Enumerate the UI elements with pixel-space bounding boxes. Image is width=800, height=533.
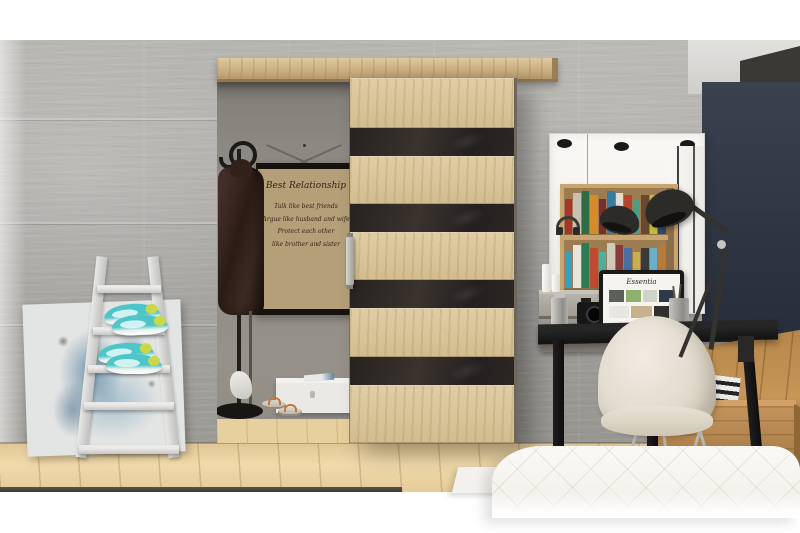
door-glass-stripe <box>350 128 514 156</box>
door-handle <box>346 236 354 286</box>
sandal <box>278 407 302 416</box>
sandals <box>262 400 306 418</box>
quote-poster: Best Relationship Talk like best friends… <box>256 163 356 315</box>
poster-line: like brother and sister <box>258 239 354 252</box>
door-wood-panel <box>350 78 514 128</box>
bed-duvet <box>492 446 800 518</box>
thumbnail-row <box>609 290 674 302</box>
door-wood-panel <box>350 232 514 281</box>
door-wood-panel <box>350 385 514 443</box>
headphones <box>556 216 580 235</box>
sneaker <box>106 354 162 374</box>
floor-edge-shadow <box>0 487 402 492</box>
ladder-step <box>79 445 179 454</box>
door-glass-stripe <box>350 204 514 232</box>
door-glass-stripe <box>350 357 514 384</box>
door-wood-panel <box>350 308 514 358</box>
spotlight-reflection <box>557 139 572 148</box>
poster-line: Talk like best friends <box>258 201 354 214</box>
silver-canister <box>551 297 568 326</box>
door-glass-stripe <box>350 280 514 307</box>
candle <box>552 274 560 292</box>
ladder-step <box>84 402 174 410</box>
chest-magazine <box>304 373 334 383</box>
candle <box>542 264 551 292</box>
poster-line: Argue like husband and wife <box>258 214 354 227</box>
wall-panel-seam <box>0 118 217 120</box>
lamp-joint <box>717 240 726 249</box>
interior-photo: Best Relationship Talk like best friends… <box>0 0 800 533</box>
coat <box>218 167 264 315</box>
scene: Best Relationship Talk like best friends… <box>0 40 800 492</box>
spotlight-reflection <box>614 142 629 151</box>
screen-title: Essentia <box>603 278 680 286</box>
coat-rack-base <box>217 403 263 419</box>
poster-string <box>301 144 342 163</box>
poster-line: Protect each other <box>258 226 354 239</box>
pendant-cord-reflection <box>587 134 588 184</box>
chair-seat <box>601 406 713 436</box>
poster-nail <box>303 144 306 147</box>
poster-title: Best Relationship <box>258 181 354 191</box>
lamp-base <box>738 336 754 362</box>
sliding-door <box>349 78 517 443</box>
wall-panel-seam <box>0 222 217 224</box>
ladder-step <box>97 285 161 293</box>
chest-lock <box>310 391 315 398</box>
desk-leg <box>553 340 564 454</box>
wall-highlight <box>0 40 26 492</box>
door-wood-panel <box>350 156 514 204</box>
